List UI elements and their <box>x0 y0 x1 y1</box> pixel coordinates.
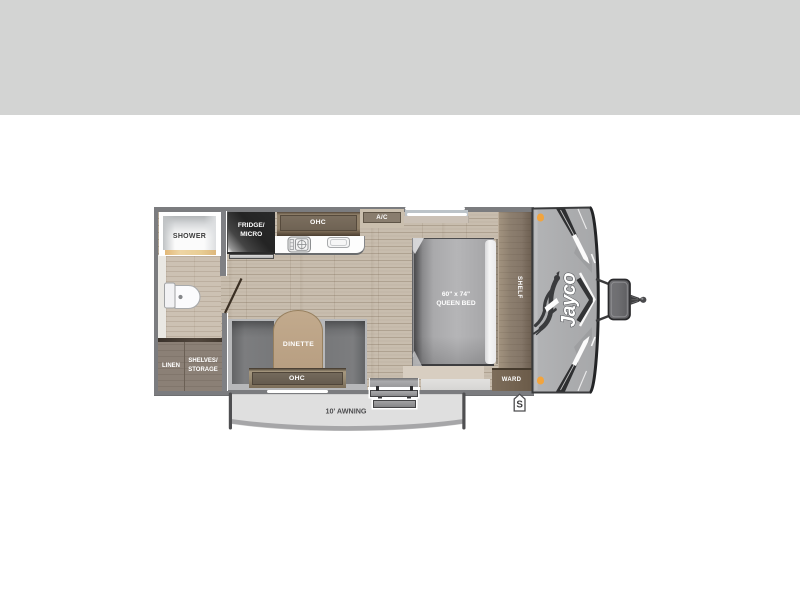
svg-text:Jayco: Jayco <box>558 273 580 327</box>
svg-text:10' AWNING: 10' AWNING <box>326 407 367 416</box>
svg-text:S: S <box>516 400 523 411</box>
